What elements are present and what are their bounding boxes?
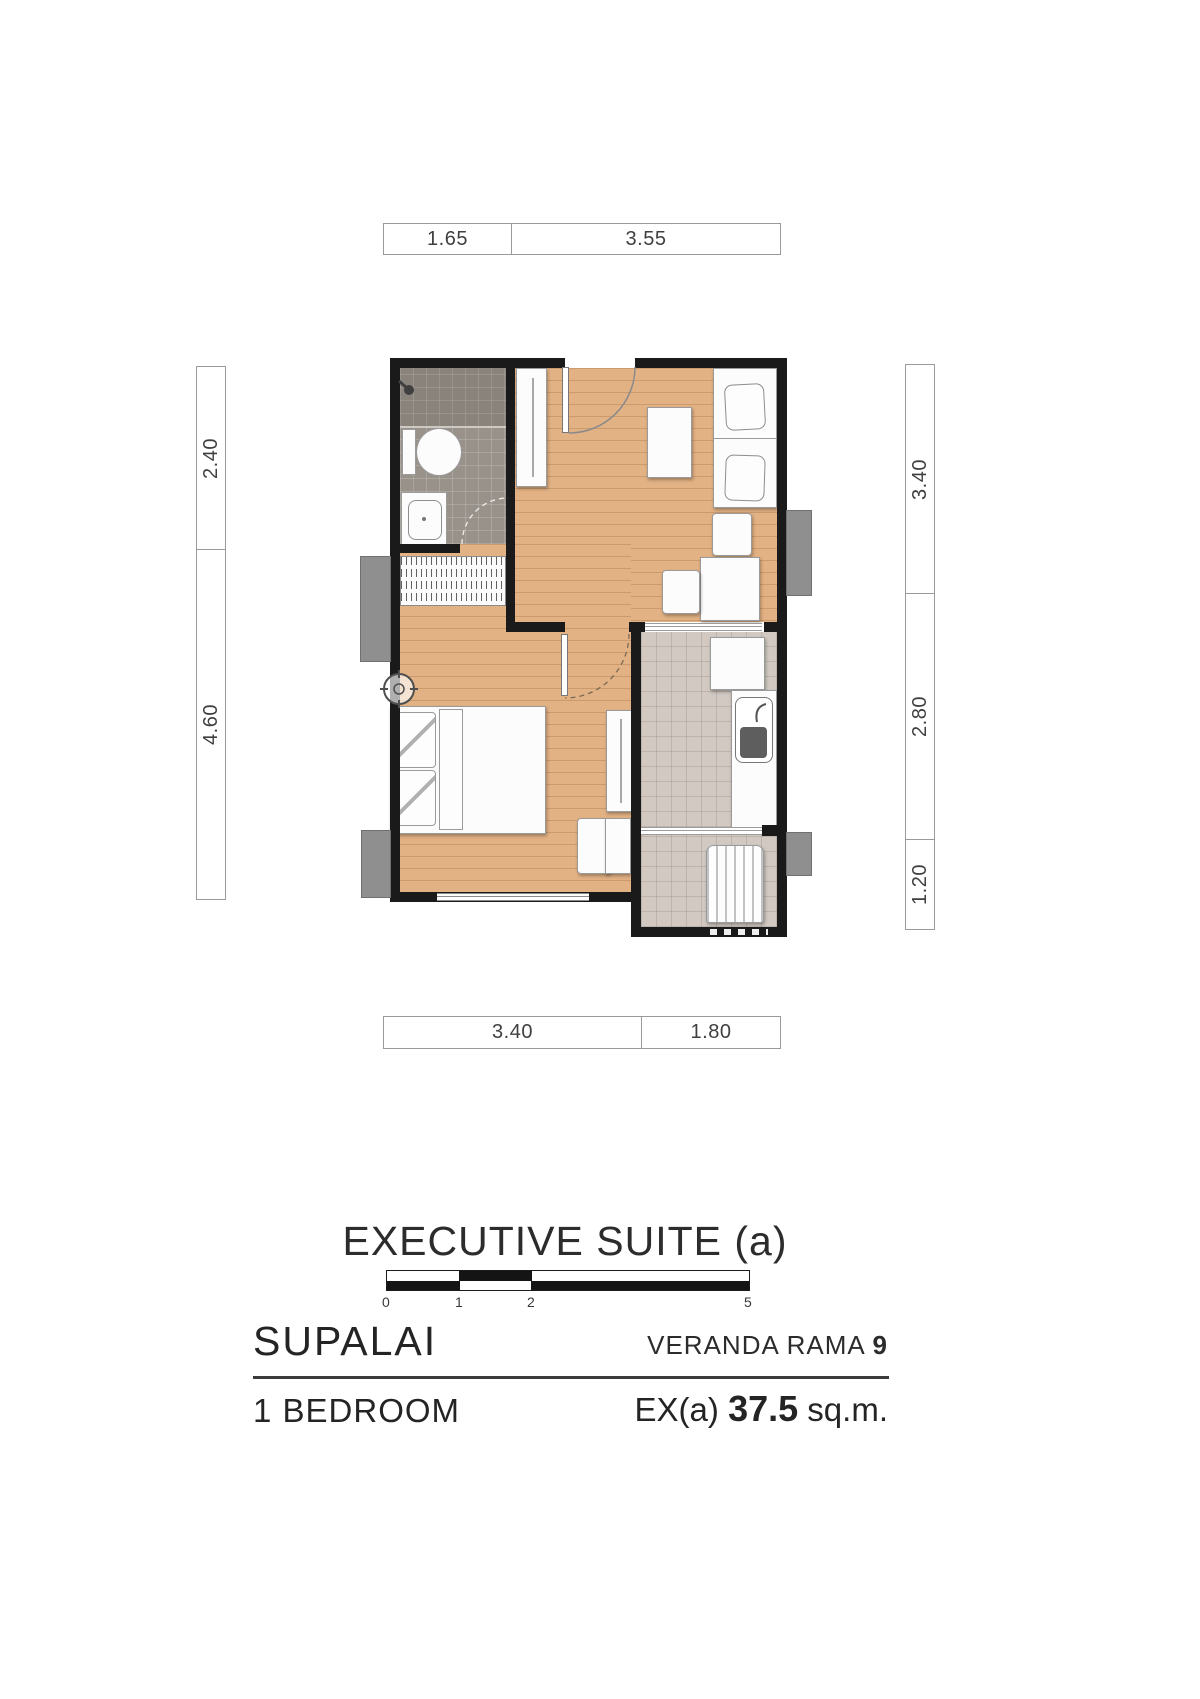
dim-left-1: 2.40: [197, 367, 225, 549]
kitchen-sink: [735, 697, 773, 763]
wall-left: [390, 358, 400, 902]
ac-ledge-left-lower: [361, 830, 391, 898]
sliding-door-kitchen: [645, 623, 762, 631]
toilet-bowl: [416, 428, 462, 476]
dim-right-2-label: 2.80: [909, 696, 932, 737]
desk-side-unit: [605, 818, 631, 874]
blanket-fold: [439, 709, 463, 830]
entry-cabinet: [516, 368, 547, 487]
dim-right-3: 1.20: [906, 839, 934, 929]
dim-top-2: 3.55: [511, 224, 780, 254]
scale-bar-row-bottom: [387, 1281, 749, 1291]
dim-right-3-label: 1.20: [909, 864, 932, 905]
footer-divider: [253, 1376, 889, 1379]
area-unit: sq.m.: [798, 1391, 888, 1428]
bathroom-sink: [401, 492, 447, 546]
sliding-door-balcony: [641, 827, 762, 835]
wall-bathroom-right: [506, 358, 515, 632]
wall-top-right: [635, 358, 787, 368]
sink-basin-dark: [740, 727, 767, 758]
ac-ledge-right-lower: [786, 832, 812, 876]
scale-label-1: 1: [455, 1294, 463, 1310]
wall-top-left: [390, 358, 565, 368]
chair-cushion-top: [724, 383, 766, 431]
ac-ledge-left-upper: [360, 556, 391, 662]
balcony-railing: [710, 929, 768, 935]
scale-seg: [387, 1281, 460, 1291]
washing-machine: [706, 845, 764, 923]
entrance-door-leaf: [562, 367, 569, 433]
project-number: 9: [873, 1330, 888, 1360]
dim-right-1: 3.40: [906, 365, 934, 593]
scale-label-2: 2: [527, 1294, 535, 1310]
project-name-text: VERANDA RAMA: [647, 1330, 872, 1360]
scale-seg: [460, 1271, 532, 1281]
toilet-tank: [402, 429, 416, 475]
project-name: VERANDA RAMA 9: [450, 1330, 888, 1361]
lounge-chair-unit: [713, 368, 777, 508]
desk-edge-line: [620, 719, 622, 803]
wardrobe: [400, 556, 506, 606]
bedroom-window: [437, 893, 589, 901]
wall-bathroom-bottom: [390, 544, 460, 553]
unit-title: EXECUTIVE SUITE (a): [330, 1218, 800, 1265]
chair-unit-divider: [714, 438, 776, 439]
scale-seg: [460, 1281, 532, 1291]
unit-area: EX(a) 37.5 sq.m.: [450, 1388, 888, 1430]
cabinet-handle: [532, 378, 534, 476]
wall-divider-left: [506, 622, 565, 632]
scale-label-0: 0: [382, 1294, 390, 1310]
scale-seg: [532, 1271, 749, 1281]
dining-table: [700, 557, 760, 621]
shower-divider-line: [400, 426, 506, 428]
scale-bar: [386, 1270, 750, 1291]
dim-bottom-2: 1.80: [641, 1017, 780, 1048]
area-code: EX(a): [635, 1391, 729, 1428]
desk: [606, 710, 633, 812]
wall-balcony-divider-end: [762, 825, 777, 836]
scale-seg: [532, 1281, 749, 1291]
wall-divider-right: [764, 622, 787, 632]
bed: [390, 706, 546, 834]
scale-label-5: 5: [744, 1294, 752, 1310]
wall-kitchen-left: [631, 622, 641, 937]
dim-left-1-label: 2.40: [200, 438, 223, 479]
chair-cushion-bottom: [724, 454, 766, 501]
dim-right-2: 2.80: [906, 593, 934, 839]
dim-left-2-label: 4.60: [200, 704, 223, 745]
floor-plan-page: 1.65 3.55 3.40 1.80 2.40 4.60 3.40 2.80 …: [0, 0, 1200, 1699]
pillow-top: [395, 712, 436, 768]
dimension-bar-top: 1.65 3.55: [383, 223, 781, 255]
coffee-table: [647, 407, 692, 478]
dimension-bar-right: 3.40 2.80 1.20: [905, 364, 935, 930]
pillow-bottom: [395, 770, 436, 826]
dim-bottom-1: 3.40: [384, 1017, 641, 1048]
scale-seg: [387, 1271, 460, 1281]
brand-logo-text: SUPALAI: [253, 1318, 437, 1365]
unit-type: 1 BEDROOM: [253, 1392, 460, 1430]
dim-right-1-label: 3.40: [909, 459, 932, 500]
dim-top-1: 1.65: [384, 224, 511, 254]
dining-chair-left: [662, 570, 700, 614]
area-value: 37.5: [728, 1388, 798, 1429]
kitchen-cabinet: [710, 637, 765, 690]
dimension-bar-left: 2.40 4.60: [196, 366, 226, 900]
bedroom-door-leaf: [561, 634, 568, 696]
ac-ledge-right-upper: [786, 510, 812, 596]
shower-area-tint: [400, 368, 506, 426]
dining-chair-top: [712, 513, 752, 556]
dimension-bar-bottom: 3.40 1.80: [383, 1016, 781, 1049]
scale-bar-row-top: [387, 1271, 749, 1281]
dim-left-2: 4.60: [197, 549, 225, 899]
sink-drain-dot: [422, 517, 426, 521]
